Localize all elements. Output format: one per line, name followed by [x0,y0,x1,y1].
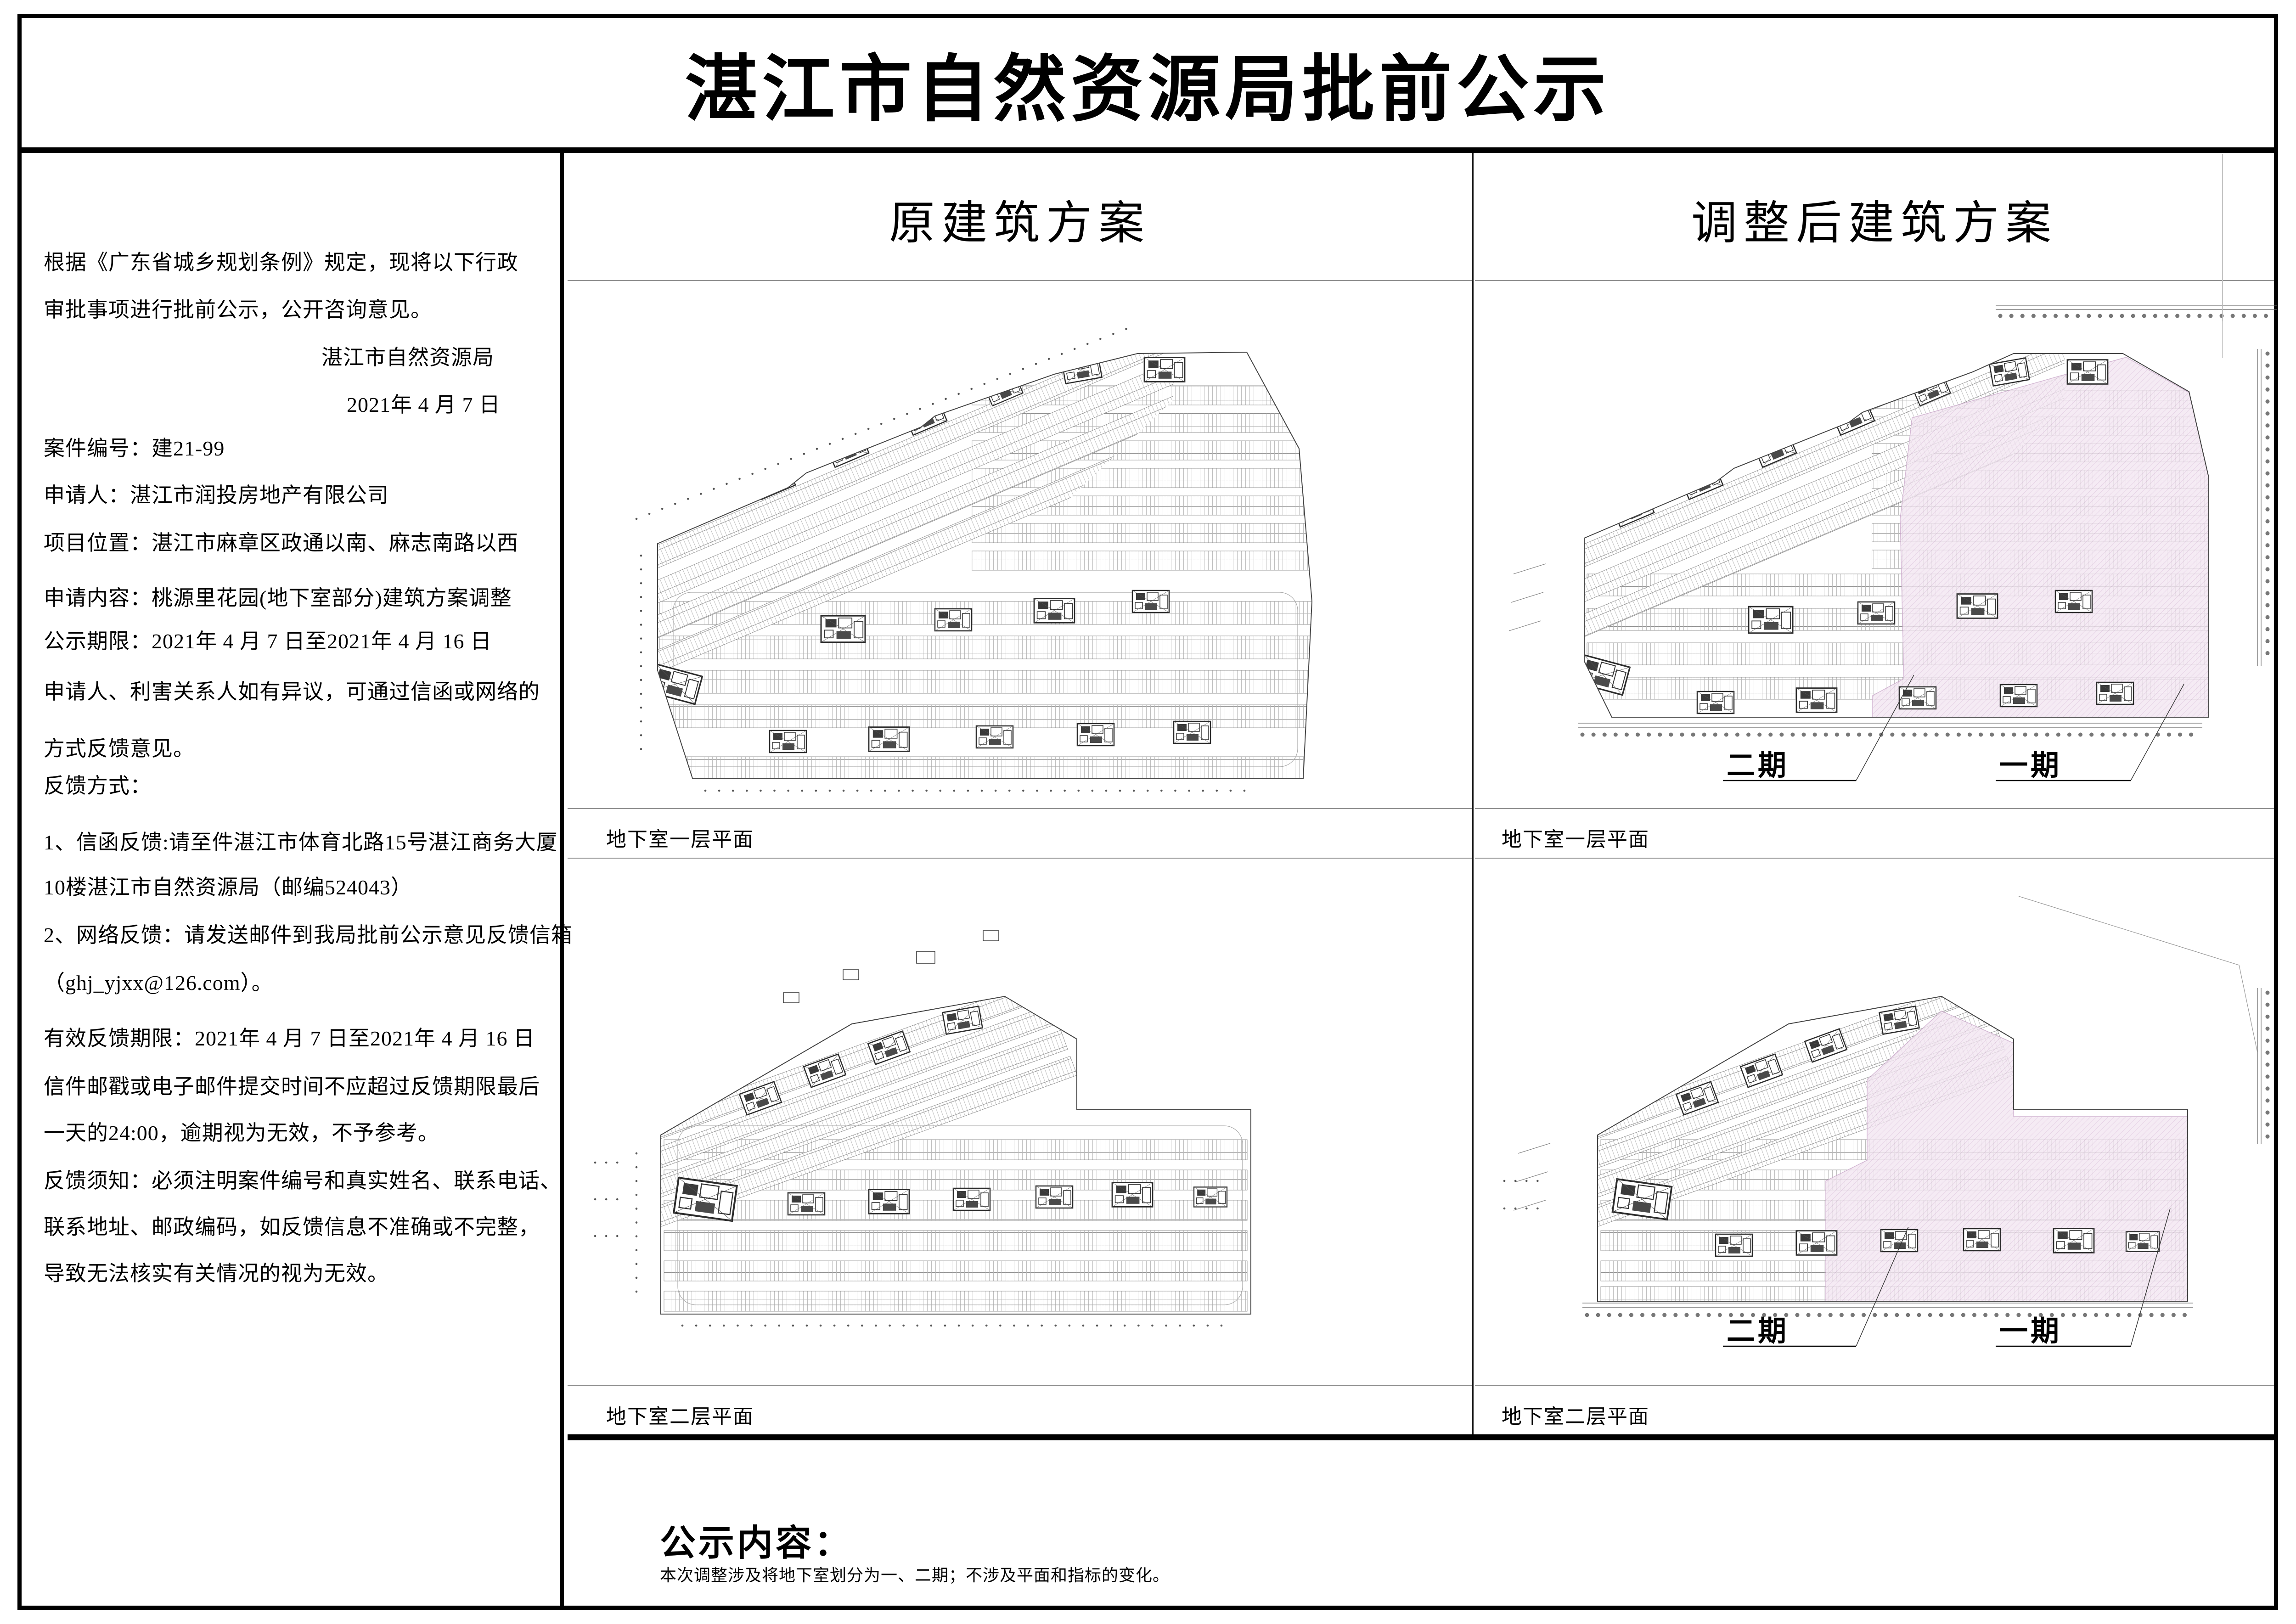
page-title: 湛江市自然资源局批前公示 [685,30,1611,135]
title-divider [22,147,2274,153]
notice-line: 导致无法核实有关情况的视为无效。 [44,1262,389,1286]
header-adjusted-plan: 调整后建筑方案 [1475,185,2274,252]
notice-line-case-no: 案件编号：建21-99 [44,437,225,461]
notice-line: 联系地址、邮政编码，如反馈信息不准确或不完整， [44,1215,540,1240]
caption-original-b1: 地下室一层平面 [606,823,754,852]
rule [568,1385,1472,1386]
header-original-plan: 原建筑方案 [568,185,1472,252]
notice-line-date: 2021年 4 月 7 日 [347,393,501,417]
caption-original-b2: 地下室二层平面 [606,1400,754,1429]
notice-line: 反馈须知：必须注明案件编号和真实姓名、联系电话、 [44,1169,562,1193]
notice-line-email: （ghj_yjxx@126.com）。 [44,971,273,995]
notice-line: 审批事项进行批前公示，公开咨询意见。 [44,298,432,322]
notice-line-location: 项目位置：湛江市麻章区政通以南、麻志南路以西 [44,531,518,556]
floor-plan-original-b1 [568,280,1463,808]
notice-line-period: 公示期限：2021年 4 月 7 日至2021年 4 月 16 日 [44,629,492,654]
footer-body: 本次调整涉及将地下室划分为一、二期；不涉及平面和指标的变化。 [660,1562,1170,1586]
notice-line-agency: 湛江市自然资源局 [321,346,494,370]
notice-line: 10楼湛江市自然资源局（邮编524043） [44,876,412,900]
rule [568,808,1472,809]
notice-poster: 湛江市自然资源局批前公示 根据《广东省城乡规划条例》规定，现将以下行政 审批事项… [0,0,2296,1624]
notice-line: 申请人、利害关系人如有异议，可通过信函或网络的 [44,680,540,704]
floor-plan-adjusted-b2: 二期 一期 [1477,860,2277,1384]
notice-line-content: 申请内容：桃源里花园(地下室部分)建筑方案调整 [44,586,512,611]
notice-text-panel: 根据《广东省城乡规划条例》规定，现将以下行政 审批事项进行批前公示，公开咨询意见… [22,153,564,1606]
phase-label-1-b2: 一期 [1999,1315,2062,1347]
notice-line: 有效反馈期限：2021年 4 月 7 日至2021年 4 月 16 日 [44,1027,535,1051]
footer-heading: 公示内容： [660,1514,853,1566]
notice-line: 反馈方式： [44,774,152,798]
rule [1475,808,2274,809]
floor-plan-original-b2 [568,860,1463,1384]
notice-line: 方式反馈意见。 [44,737,195,761]
notice-line-applicant: 申请人：湛江市润投房地产有限公司 [44,483,389,508]
phase-label-2-b2: 二期 [1727,1315,1789,1347]
notice-line: 信件邮戳或电子邮件提交时间不应超过反馈期限最后 [44,1075,540,1099]
notice-line: 1、信函反馈:请至件湛江市体育北路15号湛江商务大厦 [44,831,558,855]
title-band: 湛江市自然资源局批前公示 [22,18,2274,147]
caption-adjusted-b2: 地下室二层平面 [1502,1400,1649,1429]
floor-plan-adjusted-b1: 二期 一期 [1477,280,2277,808]
caption-adjusted-b1: 地下室一层平面 [1502,823,1649,852]
phase-label-1-b1: 一期 [1999,750,2062,781]
rule [568,858,1472,859]
panel-divider [1472,153,1474,1434]
rule [1475,858,2274,859]
footer-top-border [568,1434,2274,1440]
rule [1475,1385,2274,1386]
notice-line: 2、网络反馈：请发送邮件到我局批前公示意见反馈信箱 [44,923,573,948]
notice-line: 一天的24:00，逾期视为无效，不予参考。 [44,1121,439,1146]
notice-line: 根据《广东省城乡规划条例》规定，现将以下行政 [44,251,518,275]
phase-label-2-b1: 二期 [1727,750,1789,781]
